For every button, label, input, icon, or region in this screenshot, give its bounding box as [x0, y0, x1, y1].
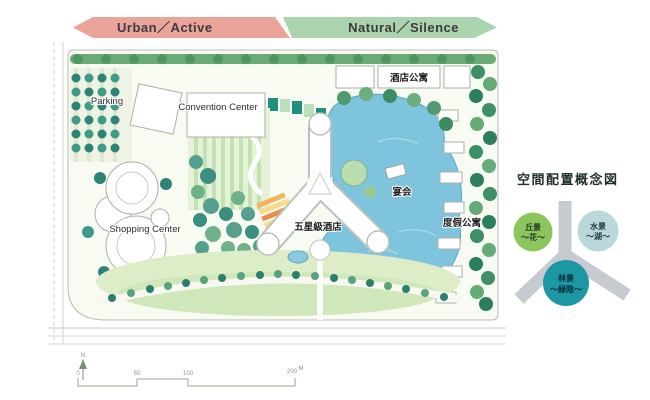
parking-label: Parking: [91, 96, 123, 107]
hotel-label: 五星級酒店: [294, 221, 342, 233]
north-hedge: [70, 54, 496, 64]
scale-tick-100: 100: [183, 371, 194, 377]
natural-silence-ribbon: Natural／Silence: [283, 17, 497, 38]
entry-pond: [288, 251, 308, 263]
scale-tick-200: 200: [287, 369, 298, 375]
hill-label-line2: 〜花〜: [521, 232, 545, 242]
natural-silence-label: Natural／Silence: [348, 20, 459, 35]
convention-center-label: Convention Center: [178, 102, 257, 113]
site-plan: Parking Convention Center Shopping Cente…: [48, 42, 506, 397]
concept-diagram: 丘景 〜花〜 水景 〜湖〜 林景 〜緑陰〜: [505, 193, 650, 313]
concept-circle-water: [578, 211, 619, 252]
scale-tick-50: 50: [134, 371, 141, 377]
urban-active-label: Urban／Active: [117, 20, 213, 35]
forest-label-line2: 〜緑陰〜: [550, 284, 582, 294]
page: { "banner": { "urban": { "label": "Urban…: [0, 0, 650, 400]
concept-diagram-title: 空間配置概念図: [517, 169, 619, 188]
scale-unit: M: [299, 366, 304, 372]
water-label-line2: 〜湖〜: [586, 231, 610, 241]
concept-circle-hill: [514, 213, 553, 252]
svg-text:N: N: [81, 353, 85, 359]
forest-label-line1: 林景: [558, 273, 574, 283]
scale-tick-0: 0: [76, 371, 80, 377]
shopping-center-label: Shopping Center: [109, 224, 180, 235]
concept-circle-forest: [543, 260, 589, 306]
north-arrow: N: [79, 353, 87, 380]
urban-active-ribbon: Urban／Active: [73, 17, 290, 38]
hill-label-line1: 丘景: [525, 222, 541, 232]
hotel-apartments-label: 酒店公寓: [390, 72, 428, 84]
banquet-label: 宴会: [392, 186, 412, 198]
resort-apartments-label: 度假公寓: [443, 217, 481, 229]
water-label-line1: 水景: [589, 221, 606, 231]
parking-area: [70, 68, 132, 162]
scale-bar: 0 50 100 200 M: [76, 366, 303, 386]
